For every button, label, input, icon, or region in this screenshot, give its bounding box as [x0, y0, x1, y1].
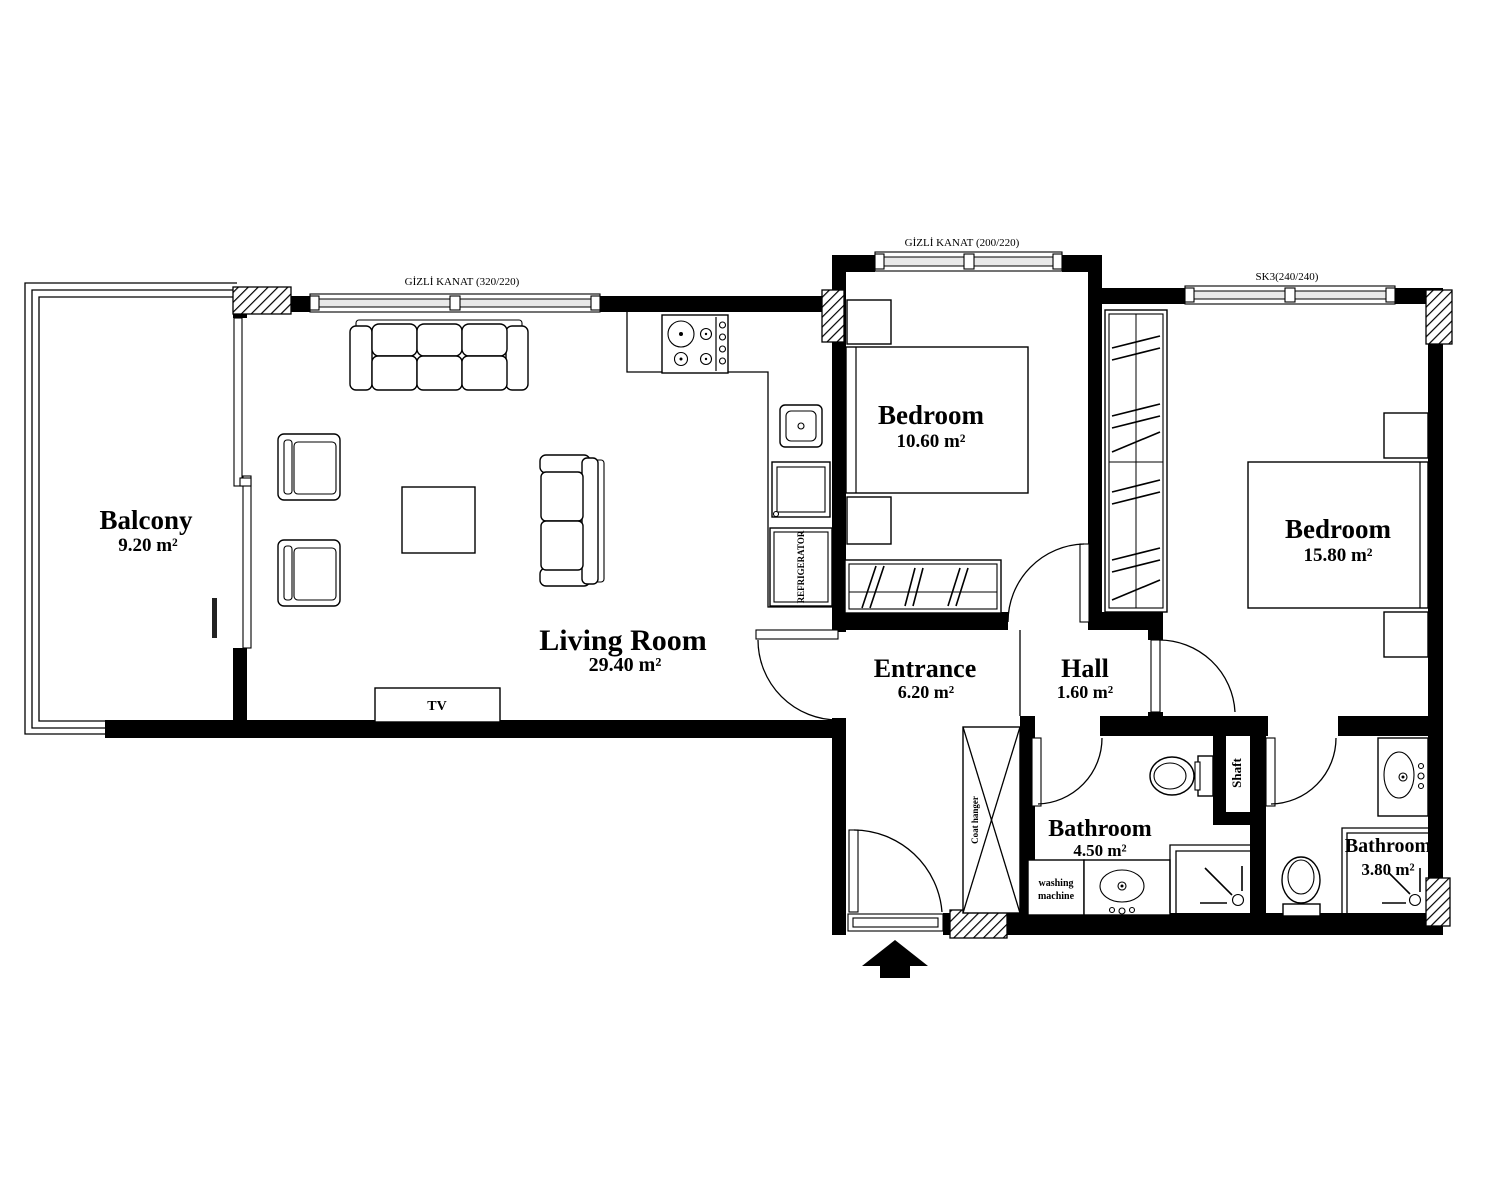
bathroom-sink	[1084, 860, 1170, 915]
door-living-entrance	[756, 630, 838, 720]
bedroom-small-name: Bedroom	[878, 400, 985, 430]
sofa	[350, 320, 528, 390]
oven	[772, 462, 830, 517]
hall-area: 1.60 m²	[1057, 682, 1113, 702]
wardrobe	[845, 560, 1001, 613]
balcony-door-mark	[212, 598, 217, 638]
toilet	[1282, 857, 1320, 916]
loveseat	[540, 455, 604, 586]
bathroom-ensuite-area: 3.80 m²	[1361, 860, 1414, 879]
door-bathroom-ensuite	[1266, 738, 1336, 806]
shower	[1170, 845, 1252, 913]
window-label-living: GİZLİ KANAT (320/220)	[405, 276, 520, 288]
column-hatch	[950, 910, 1007, 938]
column-hatch	[1426, 878, 1450, 926]
door-entrance-main	[848, 830, 943, 931]
washing-machine-label2: machine	[1038, 891, 1075, 902]
floor-plan: GİZLİ KANAT (320/220) GİZLİ KANAT (200/2…	[0, 0, 1500, 1196]
column-hatch	[822, 290, 844, 342]
tv-label: TV	[427, 699, 446, 714]
nightstand	[847, 497, 891, 544]
bedroom-large-area: 15.80 m²	[1303, 545, 1372, 566]
room-bedroom-small: Bedroom 10.60 m²	[845, 300, 1028, 613]
window-bedroom-small	[875, 252, 1062, 271]
nightstand	[847, 300, 891, 344]
bathroom-ensuite-name: Bathroom	[1345, 835, 1432, 857]
wardrobe	[1105, 310, 1167, 612]
living-name: Living Room	[539, 624, 707, 657]
entrance-name: Entrance	[874, 654, 977, 683]
window-living-room	[310, 294, 600, 312]
bedroom-small-area: 10.60 m²	[896, 431, 965, 452]
room-balcony: Balcony 9.20 m²	[99, 318, 251, 648]
bathroom-main-area: 4.50 m²	[1073, 841, 1126, 860]
hall-name: Hall	[1061, 654, 1109, 683]
room-hall: Hall 1.60 m²	[1057, 654, 1113, 702]
entrance-arrow-icon	[862, 940, 928, 978]
window-label-bedroom-large: SK3(240/240)	[1256, 271, 1319, 283]
nightstand	[1384, 612, 1428, 657]
window-label-bedroom-small: GİZLİ KANAT (200/220)	[905, 237, 1020, 249]
entrance-area: 6.20 m²	[898, 682, 954, 702]
bedroom-large-name: Bedroom	[1285, 514, 1392, 544]
refrigerator: REFRIGERATOR	[770, 528, 832, 606]
door-bedroom-large	[1151, 640, 1235, 712]
stove	[662, 315, 728, 373]
shaft-label: Shaft	[1229, 758, 1244, 788]
room-living: Living Room 29.40 m²	[278, 312, 832, 722]
floor-plan-canvas: GİZLİ KANAT (320/220) GİZLİ KANAT (200/2…	[0, 0, 1500, 1196]
toilet	[1150, 756, 1213, 796]
sliding-door	[234, 318, 251, 648]
window-bedroom-large	[1185, 286, 1395, 304]
balcony-name: Balcony	[99, 505, 193, 535]
kitchen-sink	[780, 405, 822, 447]
refrigerator-label: REFRIGERATOR	[796, 530, 806, 603]
washing-machine-label1: washing	[1038, 878, 1073, 889]
room-bedroom-large: Bedroom 15.80 m²	[1105, 310, 1428, 657]
armchair	[278, 434, 340, 500]
coat-closet: Coat hanger	[963, 727, 1020, 913]
coffee-table	[402, 487, 475, 553]
coat-hanger-label: Coat hanger	[970, 796, 980, 844]
nightstand	[1384, 413, 1428, 458]
bathroom-main-name: Bathroom	[1048, 816, 1152, 842]
column-hatch	[233, 287, 291, 314]
tv-unit: TV	[375, 688, 500, 722]
door-bathroom-main	[1032, 738, 1102, 806]
door-bedroom-small	[1008, 544, 1089, 622]
column-hatch	[1426, 290, 1452, 344]
room-bathroom-ensuite: Bathroom 3.80 m²	[1282, 738, 1431, 916]
living-area: 29.40 m²	[589, 654, 662, 676]
balcony-area: 9.20 m²	[118, 535, 178, 556]
armchair	[278, 540, 340, 606]
bathroom-sink	[1378, 738, 1428, 816]
washing-machine: washing machine	[1028, 860, 1084, 915]
